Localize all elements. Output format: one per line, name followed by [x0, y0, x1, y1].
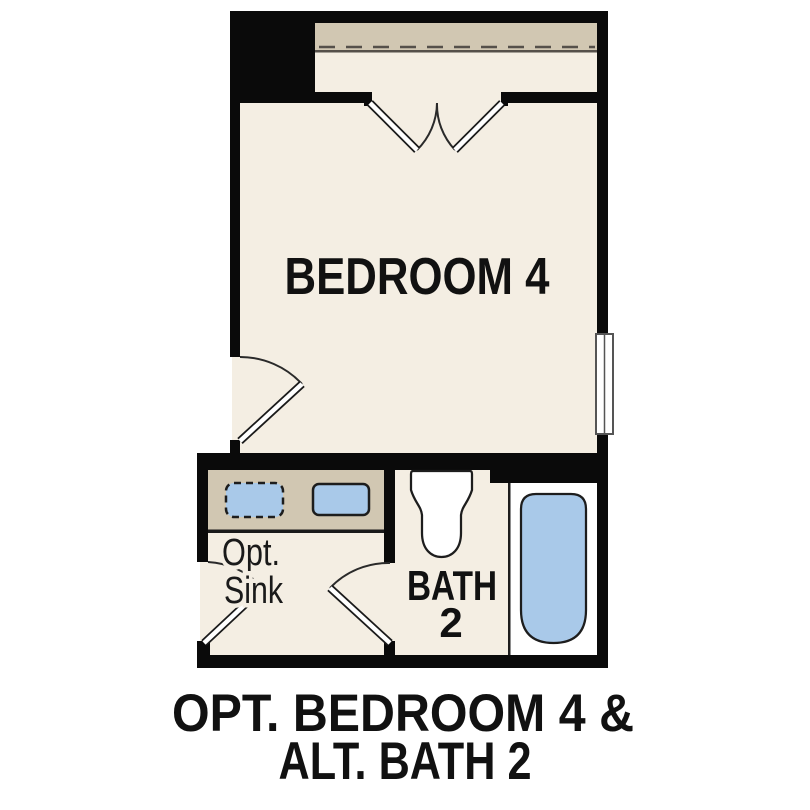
window-icon [596, 334, 613, 434]
floor-plan-page: BEDROOM 4 Opt. Sink BATH 2 OPT. BEDROOM … [0, 0, 810, 810]
closet-shelf-edge [315, 50, 597, 53]
left-wall-upper [230, 103, 240, 357]
bath-label-line2: 2 [439, 599, 462, 646]
sink-icon [313, 484, 369, 515]
tub-top-wall [490, 453, 608, 483]
tub-alcove-divider [508, 483, 511, 655]
bottom-wall [197, 655, 608, 668]
bathtub-icon [521, 494, 586, 643]
optional-sink-icon [226, 483, 283, 517]
opt-sink-label-line1: Opt. [222, 532, 280, 574]
left-wall-stub [230, 440, 240, 455]
opt-sink-label-line2: Sink [224, 570, 284, 612]
bath-left-wall [197, 453, 208, 562]
closet-wall-left [310, 92, 372, 103]
bath-divider-wall [384, 467, 395, 563]
closet-wall-right [501, 92, 597, 103]
corner-wall-block [230, 11, 315, 103]
bedroom-label: BEDROOM 4 [285, 248, 550, 306]
caption-line2: ALT. BATH 2 [279, 732, 532, 791]
floor-plan: BEDROOM 4 Opt. Sink BATH 2 OPT. BEDROOM … [0, 0, 810, 810]
